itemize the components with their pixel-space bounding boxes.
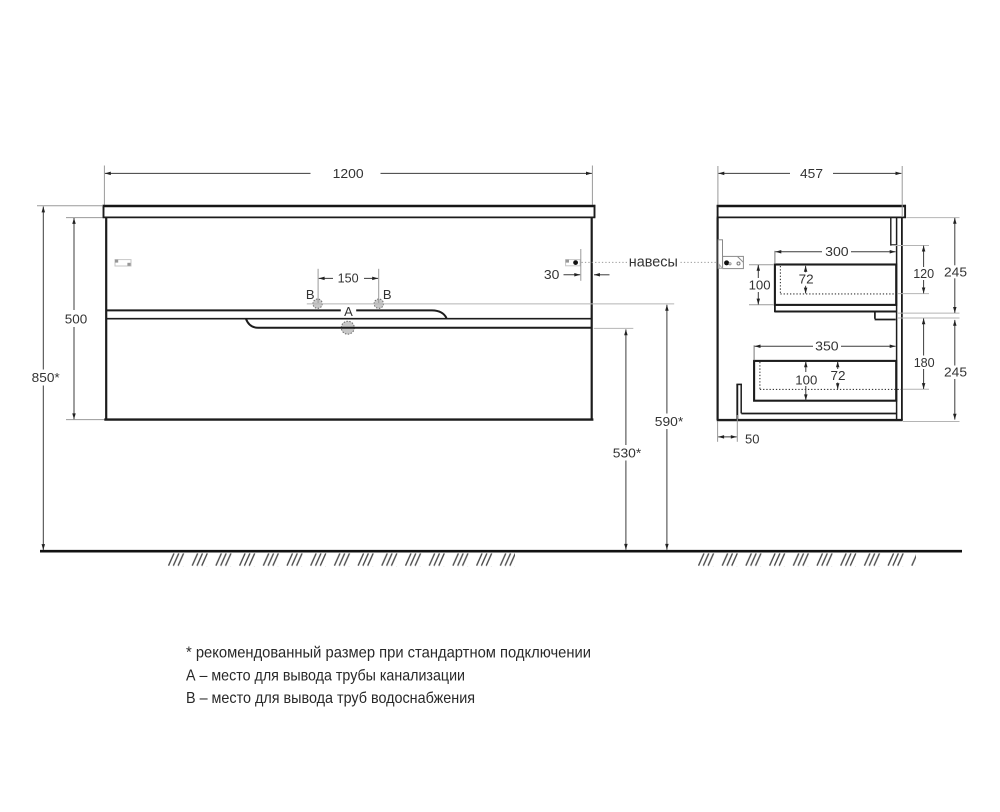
svg-text:В – место для вывода труб водо: В – место для вывода труб водоснабжения — [186, 690, 475, 707]
svg-text:120: 120 — [913, 266, 934, 281]
svg-text:* рекомендованный размер при с: * рекомендованный размер при стандартном… — [186, 645, 591, 662]
svg-text:50: 50 — [745, 432, 760, 447]
svg-text:245: 245 — [944, 264, 967, 279]
svg-text:180: 180 — [914, 355, 935, 370]
svg-text:А – место для вывода трубы кан: А – место для вывода трубы канализации — [186, 668, 465, 685]
svg-text:850*: 850* — [32, 370, 60, 385]
svg-text:500: 500 — [65, 311, 88, 326]
svg-text:100: 100 — [795, 373, 817, 388]
svg-text:B: B — [383, 287, 392, 302]
svg-text:300: 300 — [825, 244, 849, 259]
svg-text:B: B — [306, 287, 315, 302]
svg-text:530*: 530* — [613, 446, 642, 461]
svg-text:72: 72 — [831, 368, 846, 383]
svg-text:350: 350 — [815, 339, 839, 354]
svg-text:72: 72 — [799, 272, 814, 287]
svg-text:1200: 1200 — [333, 166, 364, 181]
svg-text:30: 30 — [544, 267, 560, 282]
svg-text:150: 150 — [338, 270, 359, 285]
svg-text:100: 100 — [749, 278, 771, 293]
svg-text:457: 457 — [800, 166, 823, 181]
svg-text:A: A — [344, 304, 353, 319]
svg-text:590*: 590* — [655, 414, 684, 429]
svg-text:245: 245 — [944, 365, 967, 380]
svg-text:навесы: навесы — [629, 254, 678, 271]
